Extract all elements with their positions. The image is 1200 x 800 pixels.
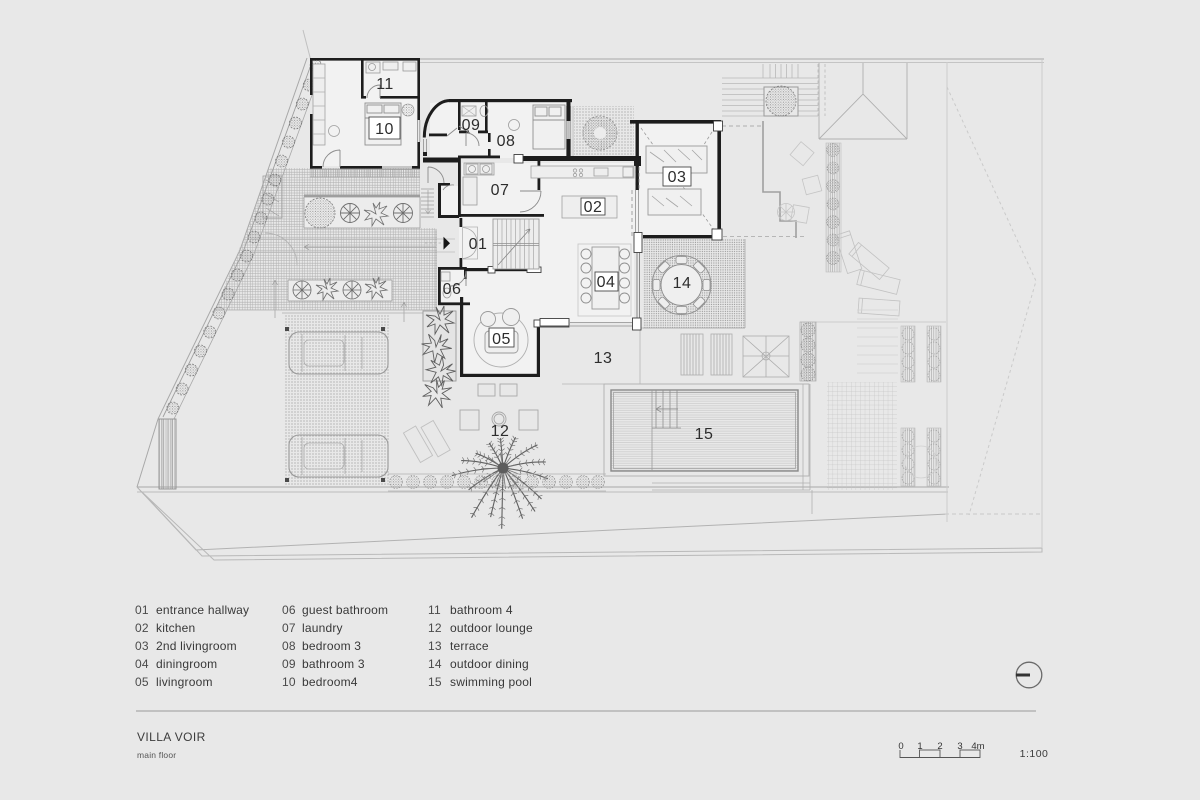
svg-text:bathroom 3: bathroom 3 xyxy=(302,657,365,671)
svg-text:01: 01 xyxy=(135,603,149,617)
svg-text:10: 10 xyxy=(282,675,296,689)
svg-text:07: 07 xyxy=(491,182,510,199)
svg-text:09: 09 xyxy=(282,657,296,671)
svg-text:02: 02 xyxy=(584,199,603,216)
svg-text:1:100: 1:100 xyxy=(1020,748,1049,760)
svg-text:bedroom4: bedroom4 xyxy=(302,675,358,689)
svg-text:04: 04 xyxy=(597,274,616,291)
svg-text:11: 11 xyxy=(428,603,441,617)
svg-text:13: 13 xyxy=(594,350,613,367)
svg-text:2nd livingroom: 2nd livingroom xyxy=(156,639,237,653)
svg-text:10: 10 xyxy=(375,121,394,138)
svg-text:guest bathroom: guest bathroom xyxy=(302,603,388,617)
svg-text:09: 09 xyxy=(462,117,481,134)
svg-text:diningroom: diningroom xyxy=(156,657,217,671)
svg-text:04: 04 xyxy=(135,657,149,671)
svg-text:outdoor lounge: outdoor lounge xyxy=(450,621,533,635)
svg-text:02: 02 xyxy=(135,621,149,635)
svg-text:06: 06 xyxy=(443,281,462,298)
svg-text:03: 03 xyxy=(668,169,687,186)
svg-text:05: 05 xyxy=(492,331,511,348)
svg-text:03: 03 xyxy=(135,639,149,653)
svg-text:08: 08 xyxy=(497,133,516,150)
svg-text:outdoor dining: outdoor dining xyxy=(450,657,529,671)
svg-text:05: 05 xyxy=(135,675,149,689)
svg-text:12: 12 xyxy=(428,621,442,635)
svg-text:0: 0 xyxy=(898,741,903,752)
svg-text:01: 01 xyxy=(469,236,488,253)
svg-text:terrace: terrace xyxy=(450,639,489,653)
svg-text:15: 15 xyxy=(695,426,714,443)
svg-text:07: 07 xyxy=(282,621,296,635)
svg-text:kitchen: kitchen xyxy=(156,621,195,635)
svg-text:06: 06 xyxy=(282,603,296,617)
svg-text:bedroom 3: bedroom 3 xyxy=(302,639,361,653)
svg-text:VILLA VOIR: VILLA VOIR xyxy=(137,730,206,744)
svg-text:livingroom: livingroom xyxy=(156,675,213,689)
svg-text:11: 11 xyxy=(376,76,394,93)
svg-text:15: 15 xyxy=(428,675,442,689)
svg-text:13: 13 xyxy=(428,639,442,653)
svg-text:entrance hallway: entrance hallway xyxy=(156,603,249,617)
svg-text:main floor: main floor xyxy=(137,750,176,760)
svg-text:12: 12 xyxy=(491,423,510,440)
svg-text:swimming pool: swimming pool xyxy=(450,675,532,689)
svg-text:08: 08 xyxy=(282,639,296,653)
svg-text:14: 14 xyxy=(673,275,692,292)
svg-text:14: 14 xyxy=(428,657,442,671)
svg-text:laundry: laundry xyxy=(302,621,343,635)
svg-text:bathroom 4: bathroom 4 xyxy=(450,603,513,617)
